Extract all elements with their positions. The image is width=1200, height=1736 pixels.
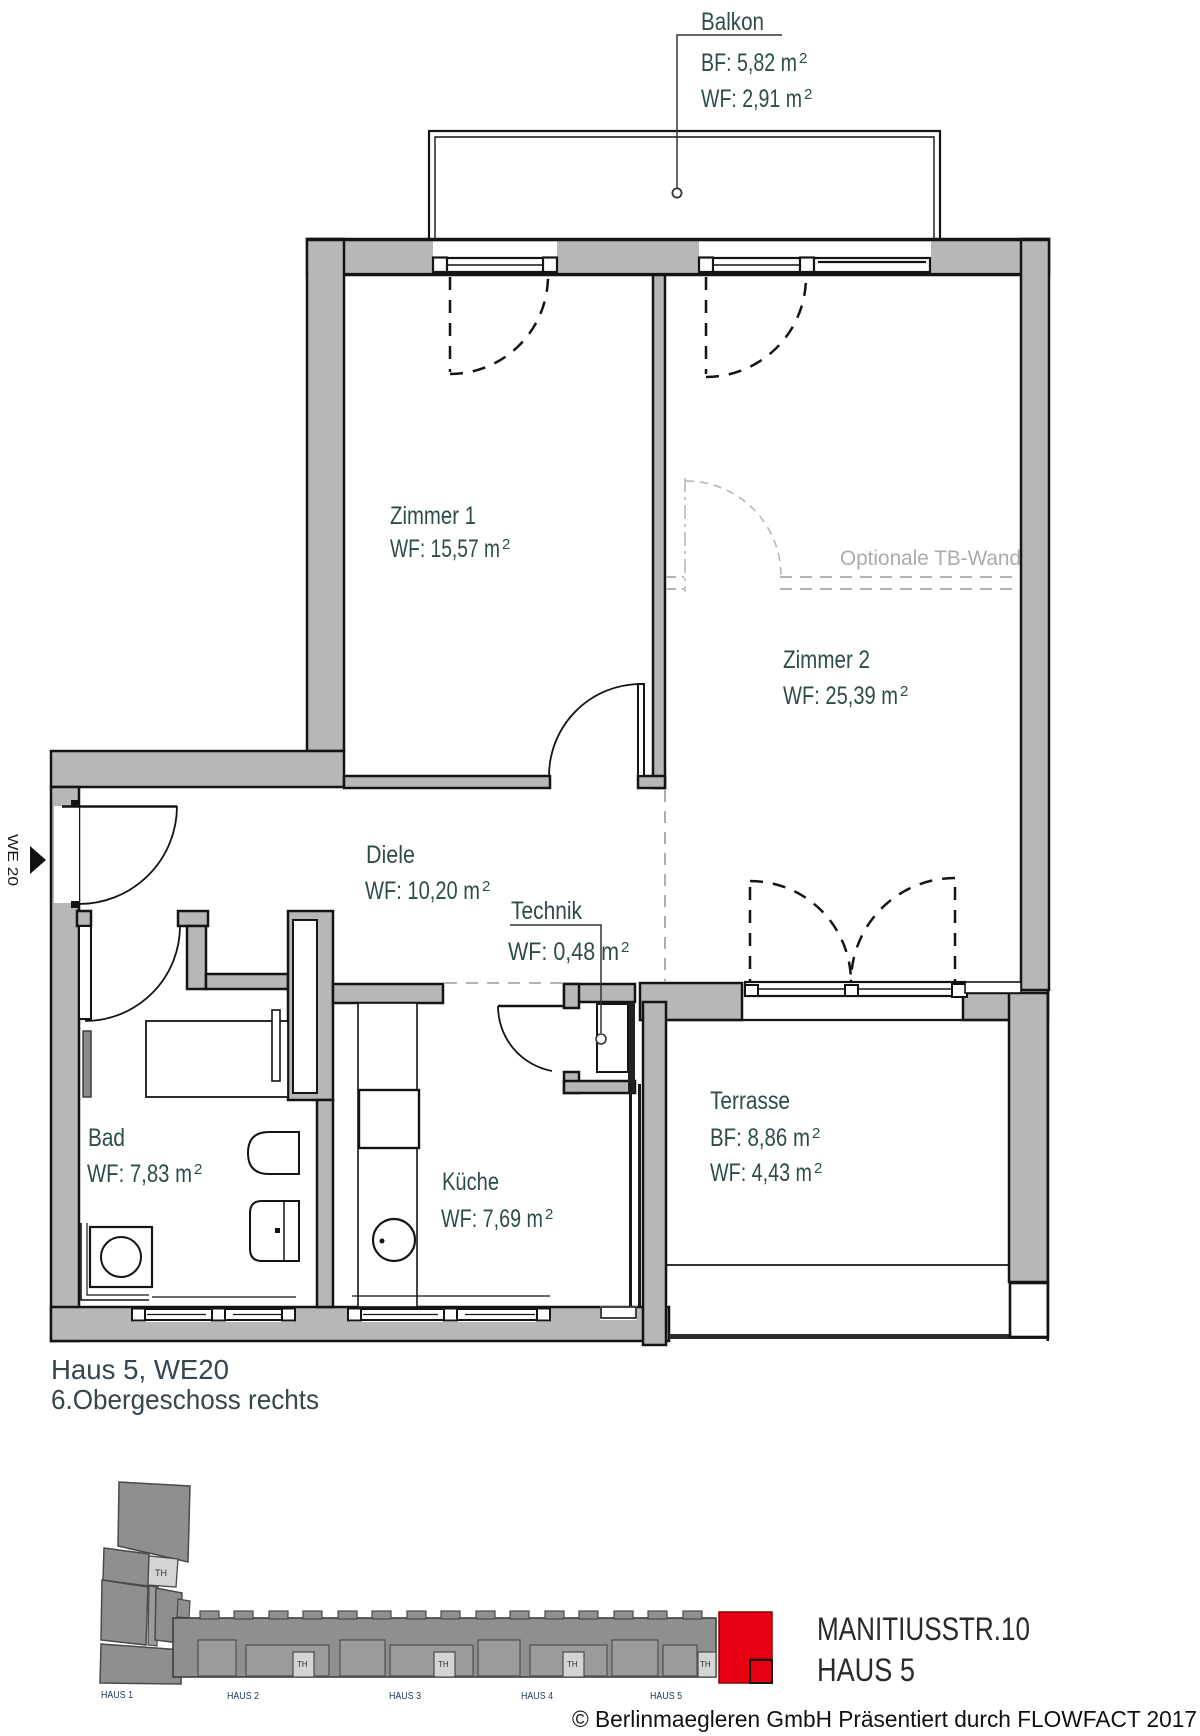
svg-text:WF: 15,57 m: WF: 15,57 m — [390, 535, 500, 563]
svg-text:2: 2 — [621, 939, 629, 956]
svg-text:WF: 25,39 m: WF: 25,39 m — [783, 682, 898, 710]
svg-text:Diele: Diele — [366, 841, 415, 869]
svg-text:Optionale TB-Wand: Optionale TB-Wand — [840, 547, 1021, 570]
svg-text:2: 2 — [900, 683, 908, 700]
svg-text:2: 2 — [812, 1125, 820, 1142]
svg-text:TH: TH — [297, 1660, 308, 1669]
svg-text:HAUS 3: HAUS 3 — [389, 1691, 421, 1702]
svg-text:TH: TH — [700, 1660, 711, 1669]
svg-text:HAUS 2: HAUS 2 — [227, 1691, 259, 1702]
svg-text:WF: 4,43 m: WF: 4,43 m — [710, 1159, 812, 1187]
svg-text:Terrasse: Terrasse — [710, 1087, 790, 1115]
svg-text:2: 2 — [482, 878, 490, 895]
svg-text:BF: 8,86 m: BF: 8,86 m — [710, 1124, 810, 1152]
svg-text:Haus 5, WE20: Haus 5, WE20 — [51, 1354, 229, 1385]
svg-text:MANITIUSSTR.10: MANITIUSSTR.10 — [817, 1611, 1030, 1647]
svg-text:WF: 0,48 m: WF: 0,48 m — [508, 938, 619, 966]
svg-text:TH: TH — [438, 1660, 449, 1669]
svg-text:WF: 7,83 m: WF: 7,83 m — [87, 1160, 192, 1188]
svg-text:TH: TH — [567, 1660, 578, 1669]
svg-text:2: 2 — [545, 1206, 553, 1223]
svg-text:Zimmer 2: Zimmer 2 — [783, 646, 870, 674]
svg-text:2: 2 — [194, 1161, 202, 1178]
svg-text:Technik: Technik — [511, 897, 582, 925]
svg-text:2: 2 — [799, 50, 807, 67]
svg-text:WF: 10,20 m: WF: 10,20 m — [365, 877, 480, 905]
svg-text:WF: 7,69 m: WF: 7,69 m — [441, 1205, 543, 1233]
svg-text:TH: TH — [155, 1568, 167, 1578]
svg-text:WF: 2,91 m: WF: 2,91 m — [701, 85, 802, 113]
svg-text:2: 2 — [814, 1160, 822, 1177]
svg-text:Zimmer 1: Zimmer 1 — [390, 502, 476, 530]
svg-text:WE 20: WE 20 — [4, 834, 21, 886]
svg-text:6.Obergeschoss rechts: 6.Obergeschoss rechts — [51, 1384, 319, 1415]
svg-text:Balkon: Balkon — [701, 8, 764, 36]
svg-text:Bad: Bad — [88, 1124, 125, 1152]
svg-text:HAUS 5: HAUS 5 — [817, 1652, 915, 1688]
svg-text:2: 2 — [502, 536, 510, 553]
svg-text:2: 2 — [804, 86, 812, 103]
svg-text:HAUS 4: HAUS 4 — [521, 1691, 553, 1702]
svg-text:HAUS 1: HAUS 1 — [101, 1690, 133, 1701]
svg-text:© Berlinmaegleren GmbH Präsent: © Berlinmaegleren GmbH Präsentiert durch… — [572, 1706, 1197, 1732]
svg-text:HAUS 5: HAUS 5 — [650, 1691, 682, 1702]
svg-text:BF: 5,82 m: BF: 5,82 m — [701, 49, 797, 77]
svg-text:Küche: Küche — [442, 1168, 499, 1196]
